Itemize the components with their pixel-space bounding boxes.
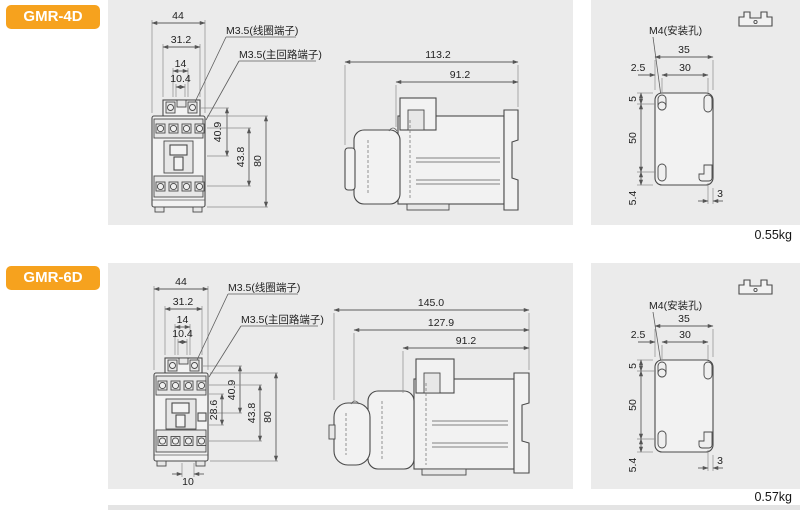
dim-43-8: 43.8 bbox=[246, 403, 258, 424]
dim-5: 5 bbox=[627, 363, 639, 369]
dim-28-6: 28.6 bbox=[208, 400, 220, 421]
dim-14: 14 bbox=[177, 314, 189, 326]
dim-31-2: 31.2 bbox=[171, 34, 192, 46]
coil-terminal-label: M3.5(线圈端子) bbox=[228, 281, 300, 294]
gmr6d-views-panel: 44 31.2 14 10.4 40.9 28.6 43.8 bbox=[108, 263, 573, 489]
dim-44: 44 bbox=[175, 276, 187, 288]
dim-3: 3 bbox=[717, 188, 723, 200]
dim-44: 44 bbox=[172, 10, 184, 22]
gmr4d-mounting-panel: M4(安装孔) 35 30 2.5 5 bbox=[591, 0, 800, 225]
dim-35: 35 bbox=[678, 313, 690, 325]
footer-bar bbox=[108, 505, 800, 510]
dim-40-9: 40.9 bbox=[226, 380, 238, 401]
dim-3: 3 bbox=[717, 455, 723, 467]
gmr6d-side-view bbox=[329, 359, 529, 475]
mounting-hole-label: M4(安装孔) bbox=[649, 24, 702, 37]
dim-2-5: 2.5 bbox=[631, 329, 646, 341]
dim-91-2: 91.2 bbox=[456, 335, 477, 347]
gmr4d-views-panel: 44 31.2 14 10.4 40.9 43.8 80 bbox=[108, 0, 573, 225]
dim-43-8: 43.8 bbox=[235, 147, 247, 168]
dim-50: 50 bbox=[627, 132, 639, 144]
dim-5-4: 5.4 bbox=[627, 458, 639, 473]
main-circuit-terminal-label: M3.5(主回路端子) bbox=[241, 313, 324, 326]
dim-10-4: 10.4 bbox=[170, 73, 191, 85]
dim-5-4: 5.4 bbox=[627, 191, 639, 206]
gmr6d-mounting-panel: M4(安装孔) 35 30 2.5 5 bbox=[591, 263, 800, 489]
dim-40-9: 40.9 bbox=[212, 122, 224, 143]
dim-35: 35 bbox=[678, 44, 690, 56]
dim-31-2: 31.2 bbox=[173, 296, 194, 308]
weight-label-gmr-4d: 0.55kg bbox=[754, 228, 792, 242]
dim-14: 14 bbox=[175, 58, 187, 70]
gmr6d-front-side-drawing: 44 31.2 14 10.4 40.9 28.6 43.8 bbox=[108, 263, 573, 489]
gmr6d-front-view bbox=[154, 358, 208, 466]
weight-label-gmr-6d: 0.57kg bbox=[754, 490, 792, 504]
gmr6d-mounting-plate bbox=[655, 360, 713, 452]
gmr4d-mounting-plate bbox=[655, 93, 713, 185]
dim-2-5: 2.5 bbox=[631, 62, 646, 74]
dim-30: 30 bbox=[679, 329, 691, 341]
gmr4d-side-view bbox=[345, 98, 518, 210]
dim-113-2: 113.2 bbox=[425, 49, 451, 61]
gmr4d-front-side-drawing: 44 31.2 14 10.4 40.9 43.8 80 bbox=[108, 0, 573, 225]
mounting-hole-label: M4(安装孔) bbox=[649, 299, 702, 312]
gmr4d-front-view bbox=[152, 100, 205, 212]
dim-5: 5 bbox=[627, 96, 639, 102]
gmr4d-mounting-drawing: M4(安装孔) 35 30 2.5 5 bbox=[591, 0, 800, 225]
din-clip-icon bbox=[739, 280, 772, 294]
dim-145-0: 145.0 bbox=[418, 297, 444, 309]
dim-80: 80 bbox=[252, 155, 264, 167]
dim-80: 80 bbox=[262, 411, 274, 423]
dim-10-4: 10.4 bbox=[172, 328, 193, 340]
dim-30: 30 bbox=[679, 62, 691, 74]
din-clip-icon bbox=[739, 12, 772, 26]
gmr6d-mounting-drawing: M4(安装孔) 35 30 2.5 5 bbox=[591, 263, 800, 489]
product-badge-gmr-4d: GMR-4D bbox=[6, 5, 100, 29]
dim-127-9: 127.9 bbox=[428, 317, 454, 329]
gmr4d-terminal-labels: M3.5(线圈端子) M3.5(主回路端子) bbox=[195, 24, 322, 120]
dim-50: 50 bbox=[627, 399, 639, 411]
datasheet-page: GMR-4D bbox=[0, 0, 800, 510]
dim-91-2: 91.2 bbox=[450, 69, 471, 81]
dim-10: 10 bbox=[182, 476, 194, 488]
coil-terminal-label: M3.5(线圈端子) bbox=[226, 24, 298, 37]
main-circuit-terminal-label: M3.5(主回路端子) bbox=[239, 48, 322, 61]
product-badge-gmr-6d: GMR-6D bbox=[6, 266, 100, 290]
gmr6d-terminal-labels: M3.5(线圈端子) M3.5(主回路端子) bbox=[197, 281, 324, 377]
